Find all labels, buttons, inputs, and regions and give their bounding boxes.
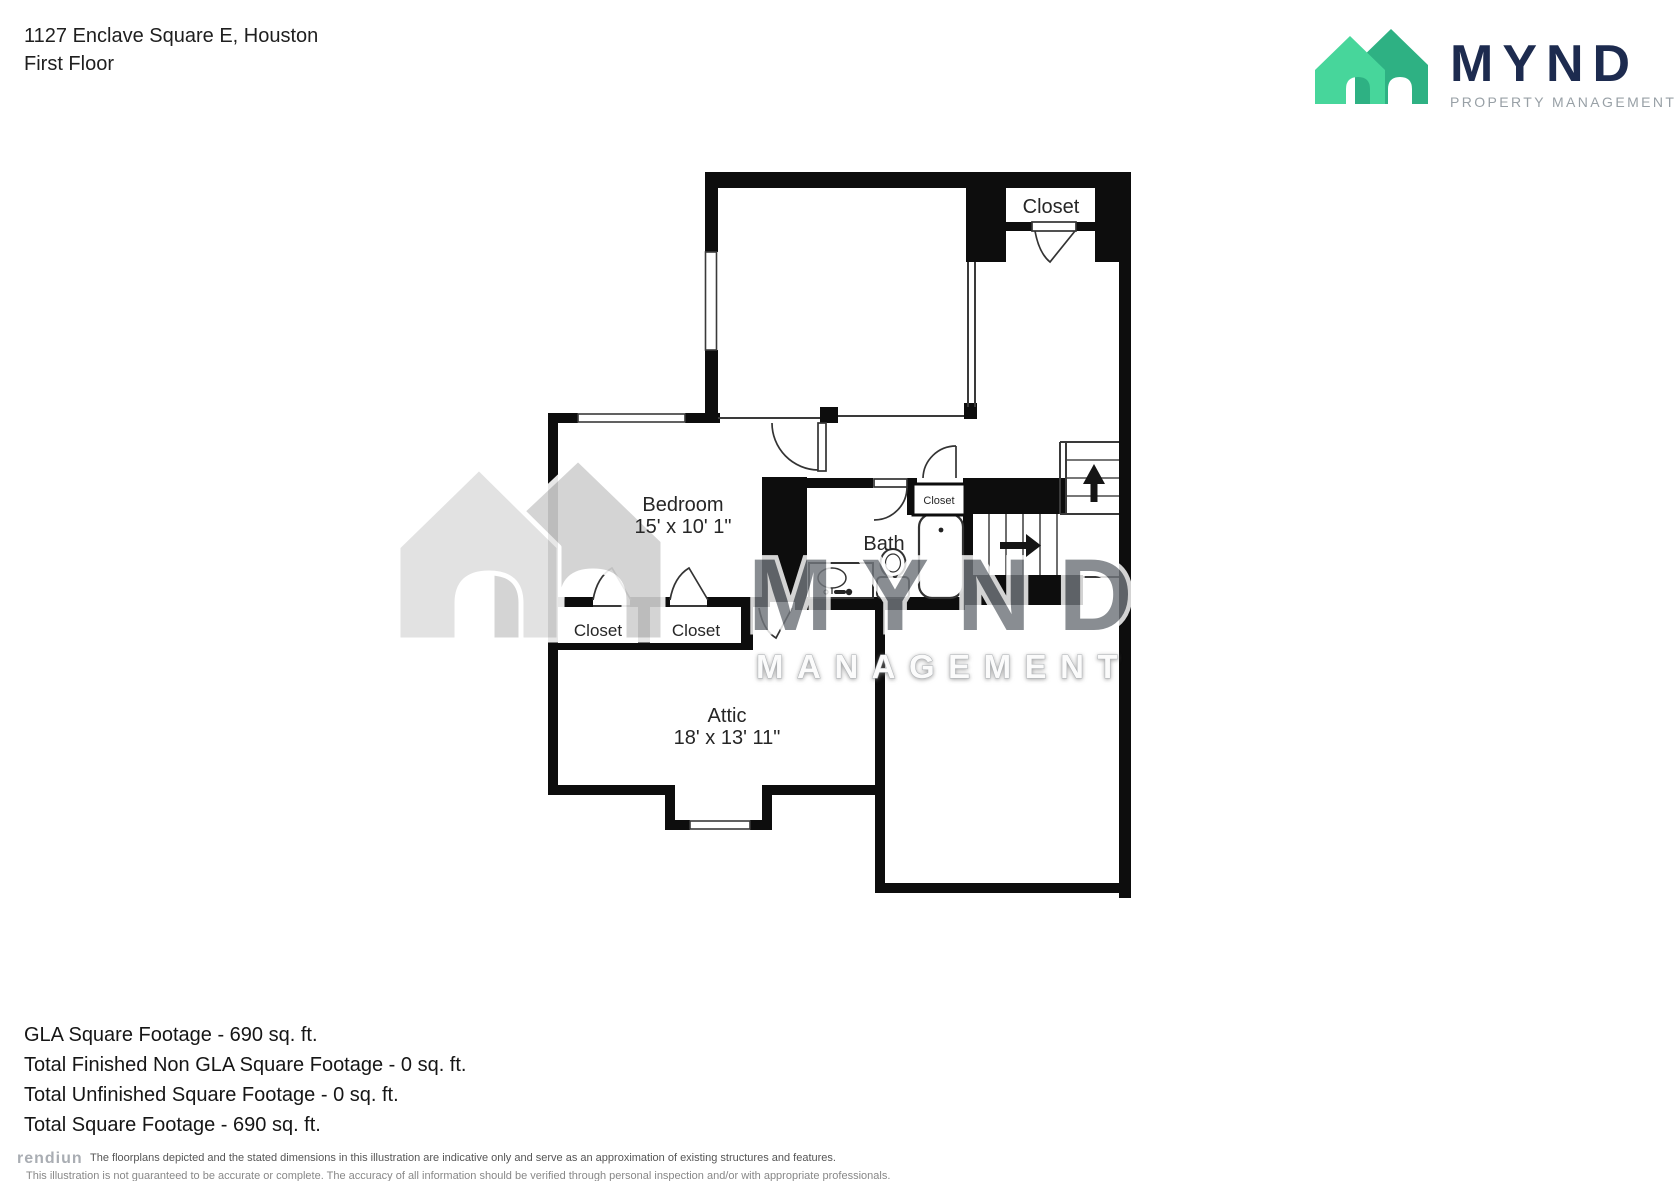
label-closet-one: Closet xyxy=(574,621,622,640)
floorplan-page: 1127 Enclave Square E, Houston First Flo… xyxy=(0,0,1680,1188)
window-top-room xyxy=(706,252,717,350)
label-closet-small: Closet xyxy=(923,495,954,507)
door-swing-bath xyxy=(874,487,907,520)
square-footage-summary: GLA Square Footage - 690 sq. ft. Total F… xyxy=(24,1020,466,1140)
label-closet-two: Closet xyxy=(672,621,720,640)
watermark-tagline: MANAGEMENT xyxy=(756,648,1131,685)
door-swing-bedroom xyxy=(772,423,818,470)
label-bedroom: Bedroom xyxy=(642,494,723,516)
summary-line: Total Square Footage - 690 sq. ft. xyxy=(24,1110,466,1140)
door-swing-small-closet xyxy=(923,446,956,478)
door-leaf-bath xyxy=(874,479,907,487)
label-bedroom-dims: 15' x 10' 1" xyxy=(634,516,731,538)
arrow-up-icon xyxy=(1083,464,1105,484)
door-leaf-top-closet xyxy=(1032,222,1076,231)
label-closet-top: Closet xyxy=(1023,196,1080,218)
label-attic: Attic xyxy=(708,705,747,727)
summary-line: GLA Square Footage - 690 sq. ft. xyxy=(24,1020,466,1050)
door-leaf-bedroom xyxy=(818,423,826,471)
label-attic-dims: 18' x 13' 11" xyxy=(674,727,781,749)
disclaimer-line-1: The floorplans depicted and the stated d… xyxy=(90,1152,836,1164)
summary-line: Total Finished Non GLA Square Footage - … xyxy=(24,1050,466,1080)
floorplan-drawing: MYND MANAGEMENT Closet Bedroom 15' x 10'… xyxy=(0,0,1680,1188)
watermark-word: MYND xyxy=(748,538,1160,652)
disclaimer-line-2: This illustration is not guaranteed to b… xyxy=(26,1170,890,1181)
vendor-logo-partial: rendiun xyxy=(17,1150,83,1168)
arrow-right-shaft xyxy=(1000,542,1026,549)
window-notch xyxy=(690,821,750,829)
watermark-house-icon xyxy=(398,459,663,640)
window-bedroom xyxy=(578,414,685,422)
arrow-up-shaft xyxy=(1091,484,1098,502)
door-closet-two xyxy=(670,568,708,600)
label-bath: Bath xyxy=(863,533,904,555)
summary-line: Total Unfinished Square Footage - 0 sq. … xyxy=(24,1080,466,1110)
tub-drain xyxy=(939,528,944,533)
door-swing-top-closet xyxy=(1035,231,1075,262)
